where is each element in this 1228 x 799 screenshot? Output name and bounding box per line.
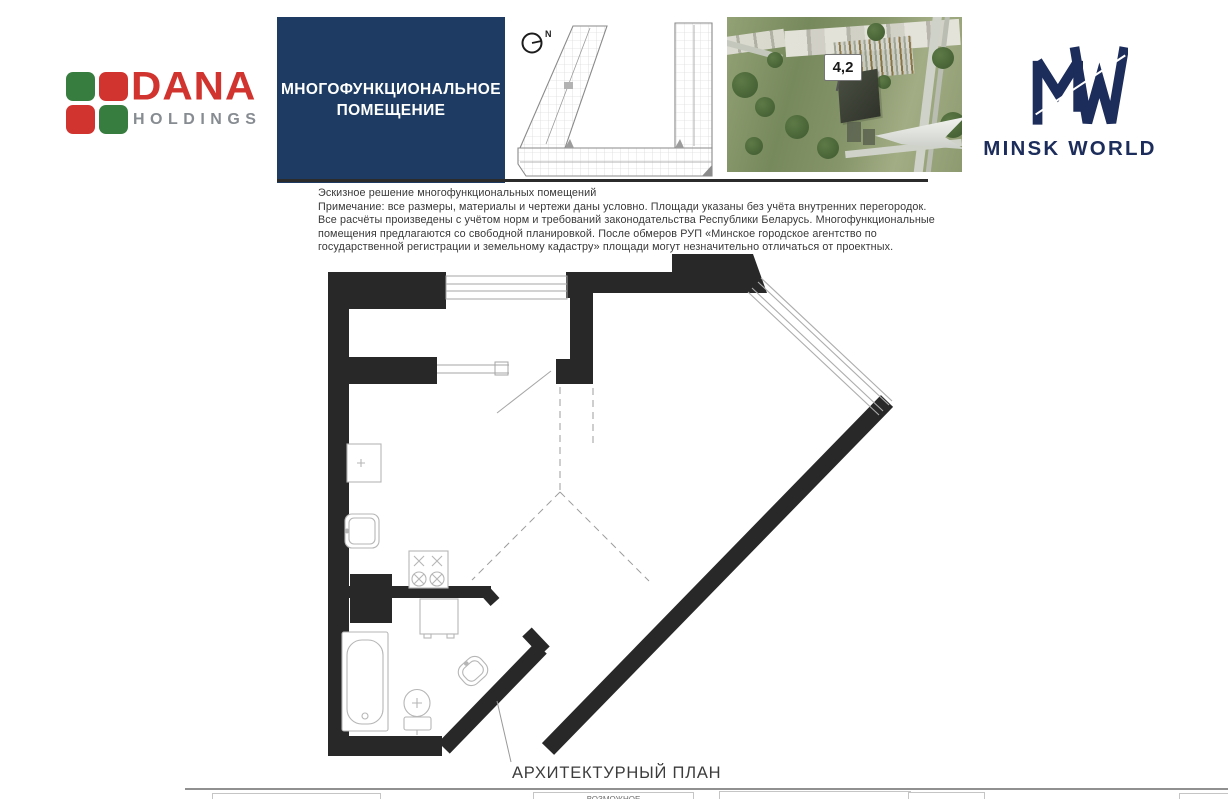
leader-line	[497, 701, 511, 762]
minsk-world-wordmark: MINSK WORLD	[972, 137, 1168, 161]
tree	[767, 52, 783, 68]
logo-square	[66, 72, 95, 101]
balcony-door	[437, 362, 551, 413]
dana-holdings-label: HOLDINGS	[133, 111, 261, 129]
stove	[409, 551, 448, 588]
washbasin	[455, 653, 492, 690]
unit-type-line2: ПОМЕЩЕНИЕ	[337, 100, 446, 121]
note-line: помещения предлагаются со свободной план…	[318, 228, 935, 242]
north-arrow-icon: N	[523, 29, 552, 53]
disclaimer-notes: Эскизное решение многофункциональных пом…	[318, 187, 935, 255]
kitchen-table	[420, 599, 458, 638]
footer-cell	[212, 793, 381, 799]
note-line: Примечание: все размеры, материалы и чер…	[318, 201, 935, 215]
tree	[877, 75, 891, 89]
kitchen-counter	[347, 444, 381, 482]
building-footprint	[518, 23, 712, 176]
tree	[785, 115, 809, 139]
footer-cell	[1179, 793, 1228, 799]
footer-cell	[719, 791, 911, 799]
footer-cell: ВОЗМОЖНОЕ	[533, 792, 694, 799]
footer-partial-label: ВОЗМОЖНОЕ	[587, 795, 641, 799]
unit-type-line1: МНОГОФУНКЦИОНАЛЬНОЕ	[281, 79, 501, 100]
free-plan-dashed-lines	[472, 387, 649, 581]
toilet	[404, 690, 431, 736]
sheet-footer-rule	[185, 788, 1228, 790]
north-label: N	[545, 29, 552, 39]
logo-square	[66, 105, 95, 134]
door-swing	[497, 371, 551, 413]
tree	[932, 47, 954, 69]
mw-monogram-icon	[1032, 40, 1128, 128]
tree	[817, 137, 839, 159]
tree	[745, 137, 763, 155]
footer-cell	[908, 792, 985, 799]
logo-square	[99, 72, 128, 101]
tree	[755, 97, 775, 117]
plan-sheet: DANA HOLDINGS МНОГОФУНКЦИОНАЛЬНОЕ ПОМЕЩЕ…	[0, 0, 1228, 799]
logo-square	[99, 105, 128, 134]
location-marker-label: 4,2	[833, 59, 854, 76]
building	[863, 129, 875, 145]
dana-logo	[66, 72, 128, 134]
dana-wordmark: DANA	[131, 66, 256, 106]
walls-diagonal	[444, 401, 887, 749]
note-line: Все расчёты произведены с учётом норм и …	[318, 214, 935, 228]
key-plan: N	[508, 16, 720, 182]
kitchen-sink	[345, 514, 379, 548]
plan-caption: АРХИТЕКТУРНЫЙ ПЛАН	[512, 764, 721, 783]
tree	[732, 72, 758, 98]
unit-type-banner: МНОГОФУНКЦИОНАЛЬНОЕ ПОМЕЩЕНИЕ	[277, 17, 505, 183]
building	[847, 122, 861, 142]
aerial-photo: 4,2	[727, 17, 962, 172]
window-glazing	[748, 278, 892, 415]
floor-plan-drawing	[320, 250, 920, 772]
balcony-window	[446, 276, 567, 299]
bathtub	[342, 632, 388, 731]
location-marker: 4,2	[824, 54, 862, 81]
tree	[867, 23, 885, 41]
note-line: Эскизное решение многофункциональных пом…	[318, 187, 935, 201]
